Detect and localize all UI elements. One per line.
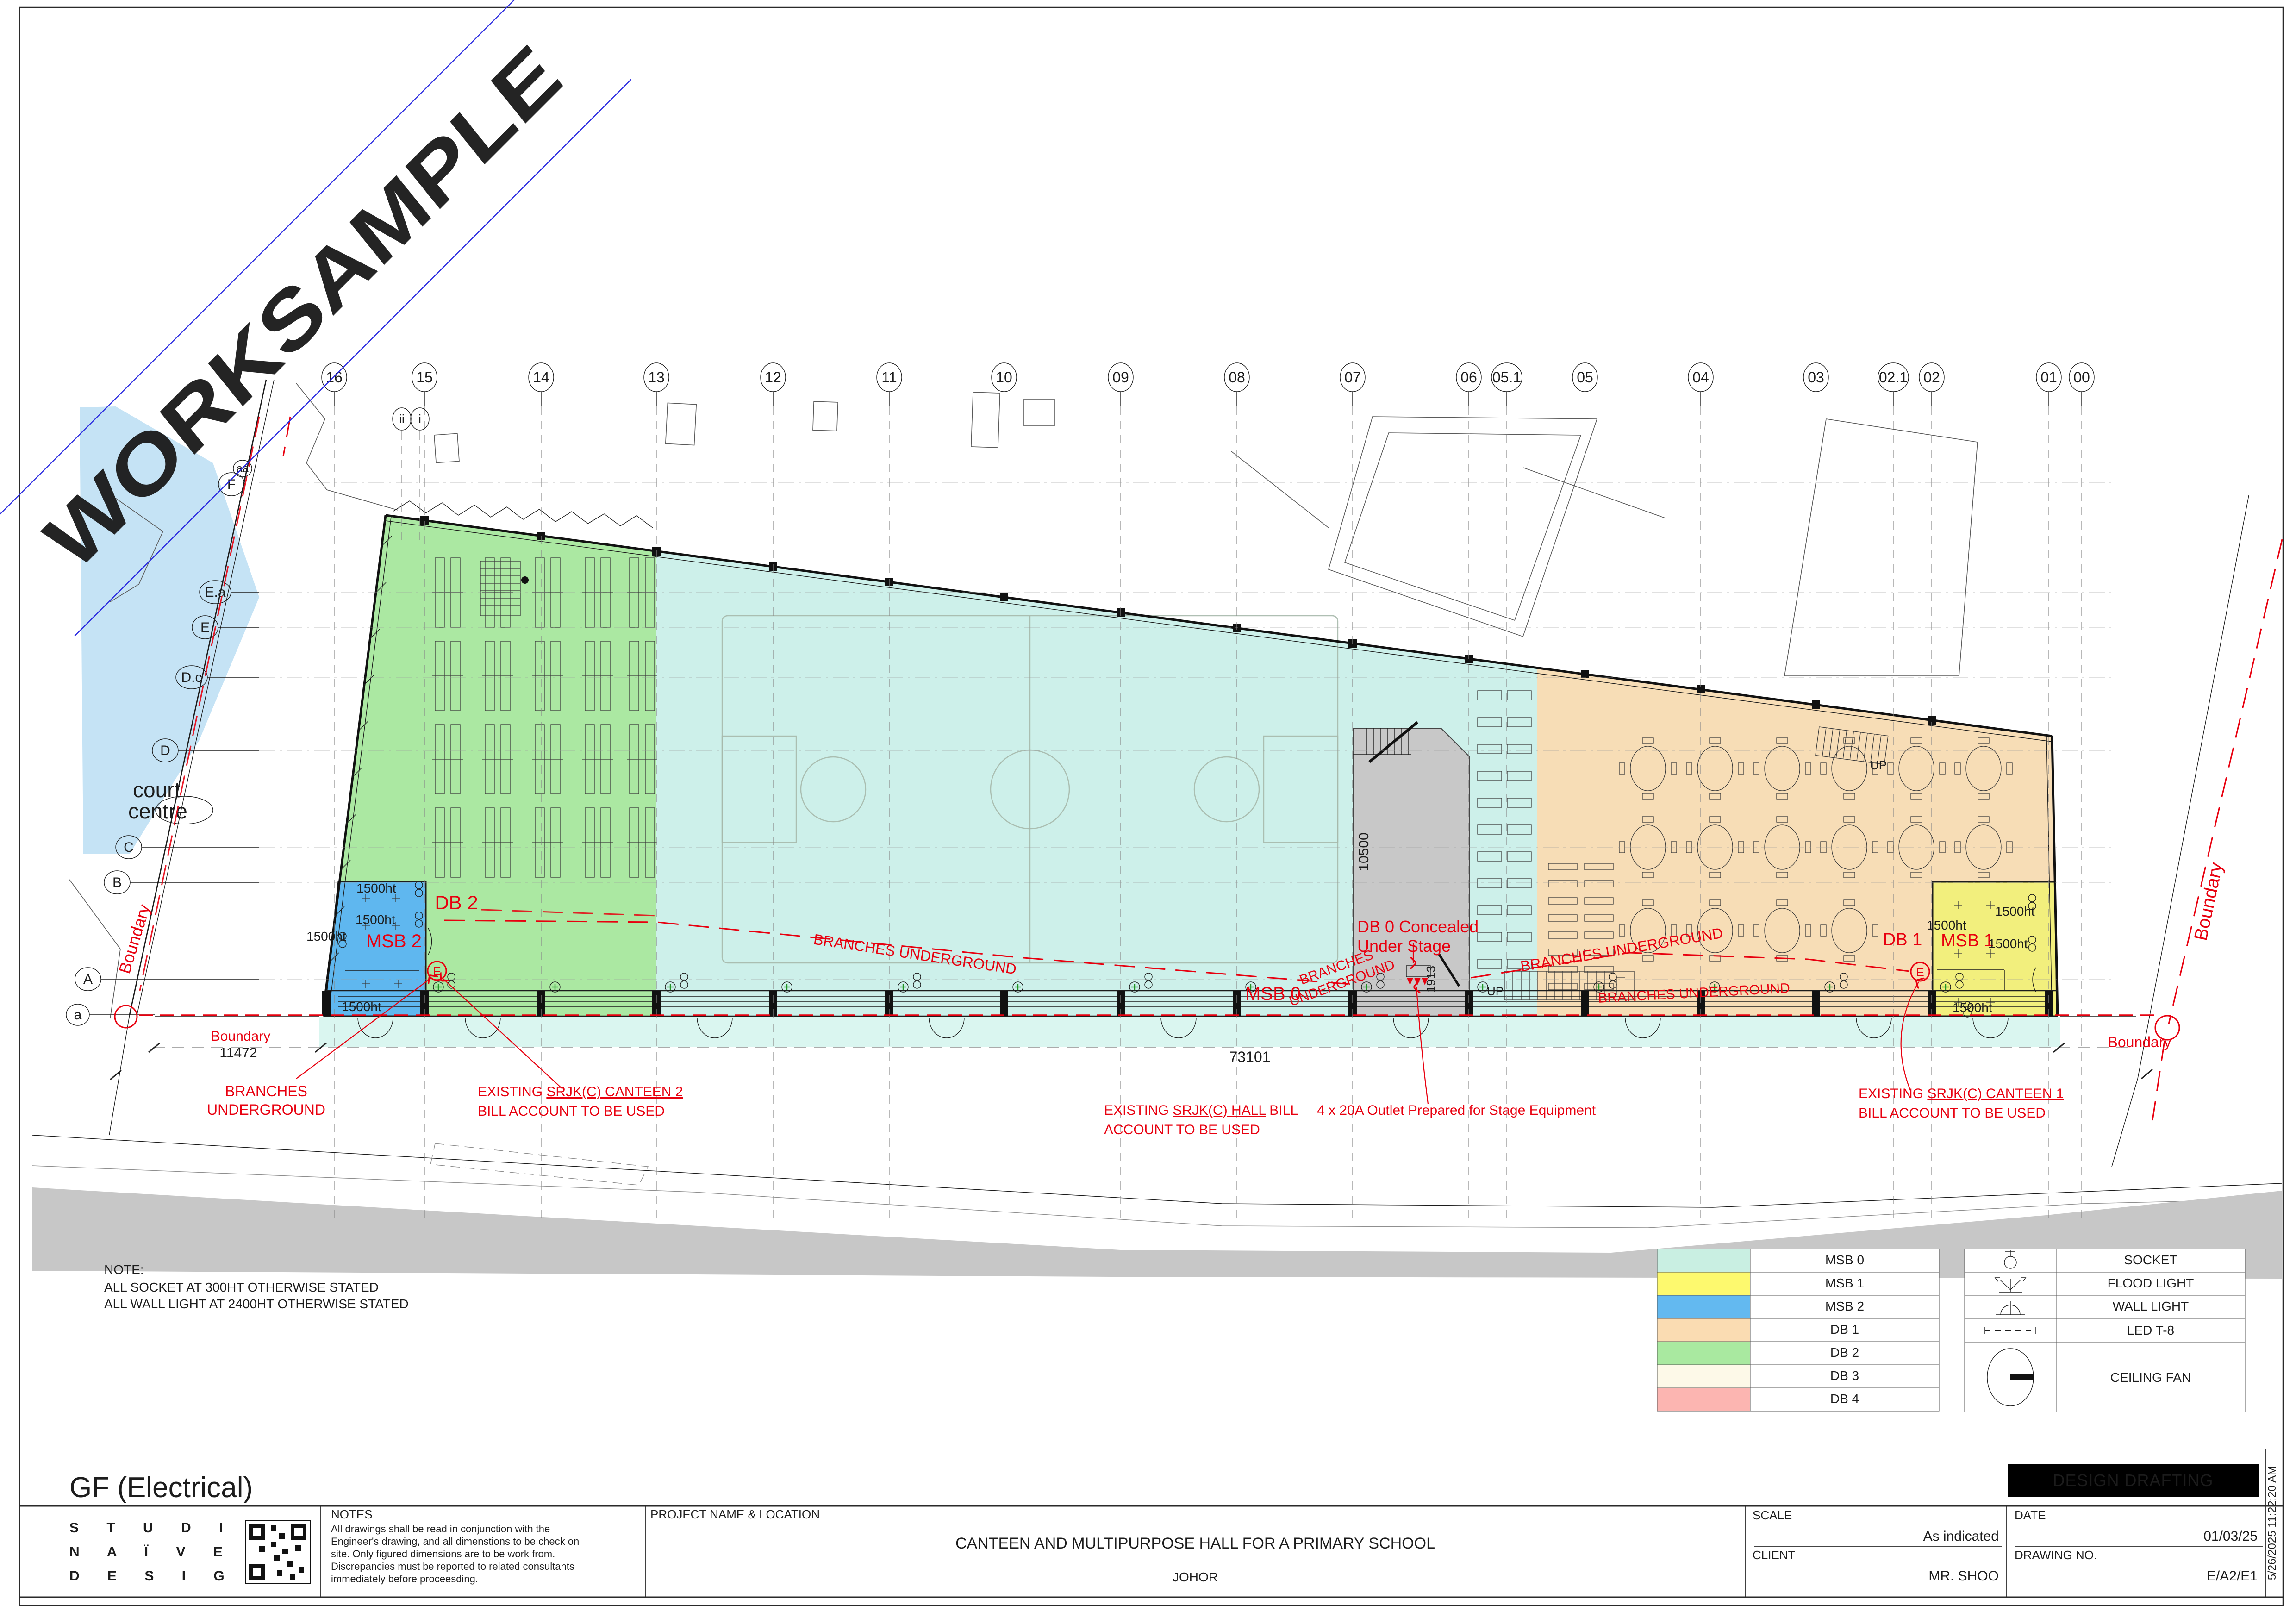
legend-label: FLOOD LIGHT [2108, 1276, 2194, 1290]
note-header: NOTE: [104, 1262, 144, 1277]
project-location: JOHOR [1173, 1570, 1218, 1584]
scale-value: As indicated [1923, 1529, 1999, 1544]
legend-label: DB 3 [1830, 1368, 1859, 1383]
svg-text:S T U D I O: S T U D I O [69, 1520, 274, 1536]
branches-label: BRANCHES [225, 1083, 307, 1099]
msb2-label: MSB 2 [366, 931, 422, 951]
db1-label: DB 1 [1883, 930, 1922, 949]
grid-bubble: 12 [765, 369, 781, 386]
notes-line: Discrepancies must be reported to relate… [331, 1561, 574, 1572]
notes-line: site. Only figured dimensions are to be … [331, 1548, 555, 1560]
svg-text:1500ht: 1500ht [342, 999, 381, 1014]
grid-bubble: 00 [2073, 369, 2090, 386]
db2-label: DB 2 [435, 892, 478, 913]
date-value: 01/03/25 [2203, 1529, 2258, 1544]
svg-text:5/26/2025 11:22:20 AM: 5/26/2025 11:22:20 AM [2266, 1466, 2278, 1580]
svg-text:1500ht: 1500ht [306, 929, 346, 943]
grid-bubble: 05 [1577, 369, 1593, 386]
legend-label: LED T-8 [2127, 1323, 2174, 1337]
legend-label: CEILING FAN [2110, 1370, 2191, 1385]
grid-bubble: a [74, 1007, 82, 1023]
grid-bubble: 08 [1229, 369, 1245, 386]
drawing-no-label: DRAWING NO. [2015, 1548, 2097, 1562]
grid-bubble-sub: i [418, 412, 421, 426]
grid-bubble: aa [237, 462, 249, 475]
grid-bubble: 01 [2040, 369, 2057, 386]
svg-text:ACCOUNT TO BE USED: ACCOUNT TO BE USED [1104, 1122, 1260, 1137]
grid-bubble: 05.1 [1492, 369, 1521, 386]
grid-bubble: A [83, 972, 93, 987]
drawing-no-value: E/A2/E1 [2207, 1568, 2258, 1584]
legend-label: WALL LIGHT [2113, 1299, 2189, 1313]
legend-label: SOCKET [2124, 1253, 2177, 1267]
note-line: ALL SOCKET AT 300HT OTHERWISE STATED [104, 1280, 379, 1294]
grid-bubble: D [160, 743, 170, 758]
legend-label: MSB 1 [1825, 1276, 1864, 1290]
qr-code [245, 1521, 310, 1583]
scale-label: SCALE [1753, 1508, 1792, 1522]
dim-10500: 10500 [1356, 832, 1372, 871]
svg-text:N A Ï V E: N A Ï V E [69, 1544, 235, 1560]
up-label: UP [1870, 758, 1887, 772]
grid-bubble: C [124, 840, 134, 855]
grid-bubble: 03 [1808, 369, 1824, 386]
legend-label: DB 1 [1830, 1322, 1859, 1337]
grid-bubble: 06 [1460, 369, 1477, 386]
grid-bubble: 15 [416, 369, 433, 386]
svg-text:1500ht: 1500ht [1953, 1000, 1992, 1015]
court-centre-text: centre [128, 799, 187, 823]
svg-text:1500ht: 1500ht [1995, 904, 2035, 918]
floor-plan-canvas: UP UP [0, 0, 2296, 1624]
grid-bubble: 02 [1923, 369, 1940, 386]
grid-bubble: 09 [1112, 369, 1129, 386]
underground-label: UNDERGROUND [207, 1101, 325, 1118]
notes-header: NOTES [331, 1507, 373, 1521]
grid-bubble: E.a [205, 585, 225, 600]
svg-text:BILL ACCOUNT TO BE USED: BILL ACCOUNT TO BE USED [1859, 1106, 2046, 1121]
grid-bubble: 07 [1344, 369, 1361, 386]
msb1-label: MSB 1 [1941, 931, 1994, 950]
svg-text:E: E [1916, 965, 1924, 979]
grid-bubble: 16 [326, 369, 343, 386]
date-label: DATE [2015, 1508, 2046, 1522]
legend-symbols: SOCKET FLOOD LIGHT WALL LIGHT LED T-8 CE… [1965, 1249, 2245, 1412]
boundary-label: Boundary [2108, 1034, 2171, 1050]
grid-bubble: D.c [181, 670, 202, 685]
svg-text:1500ht: 1500ht [356, 912, 395, 927]
svg-text:1500ht: 1500ht [356, 881, 396, 895]
grid-bubble: 10 [996, 369, 1012, 386]
court-centre-text: court [133, 778, 180, 802]
svg-text:E: E [433, 964, 441, 978]
outlet-note: 4 x 20A Outlet Prepared for Stage Equipm… [1317, 1103, 1596, 1118]
grid-bubble: 02.1 [1879, 369, 1908, 386]
client-value: MR. SHOO [1928, 1568, 1999, 1584]
grid-bubble: 04 [1692, 369, 1709, 386]
grid-bubble: E [200, 620, 210, 635]
notes-line: immediately before proceesding. [331, 1573, 478, 1585]
legend-zones: MSB 0 MSB 1 MSB 2 DB 1 DB 2 DB 3 DB 4 [1657, 1249, 1939, 1411]
svg-text:EXISTING SRJK(C) HALL BILL: EXISTING SRJK(C) HALL BILL [1104, 1103, 1298, 1118]
svg-text:DESIGN DRAFTING: DESIGN DRAFTING [2053, 1471, 2213, 1490]
svg-text:1500ht: 1500ht [1988, 937, 2028, 951]
legend-label: DB 2 [1830, 1345, 1859, 1360]
dim-1913: 1913 [1424, 966, 1438, 993]
grid-bubble: 11 [881, 369, 897, 386]
grid-bubble-sub: ii [399, 412, 405, 426]
project-header: PROJECT NAME & LOCATION [650, 1507, 820, 1521]
svg-text:1500ht: 1500ht [1927, 918, 1966, 932]
grid-bubble: 14 [533, 369, 549, 386]
walkway [319, 1017, 2060, 1047]
legend-label: MSB 2 [1825, 1299, 1864, 1313]
grid-bubble: B [112, 875, 122, 890]
db0-label: DB 0 Concealed [1357, 917, 1479, 936]
notes-line: Engineer's drawing, and all dimenstions … [331, 1536, 579, 1547]
print-timestamp: 5/26/2025 11:22:20 AM [2266, 1466, 2278, 1580]
drawing-sheet: { "sheet": { "watermark": "WORKSAMPLE", … [0, 0, 2296, 1624]
project-name: CANTEEN AND MULTIPURPOSE HALL FOR A PRIM… [955, 1535, 1435, 1552]
grid-bubble: 13 [648, 369, 665, 386]
dim-11472: 11472 [219, 1045, 257, 1061]
notes-line: All drawings shall be read in conjunctio… [331, 1523, 550, 1535]
client-label: CLIENT [1753, 1548, 1796, 1562]
note-line: ALL WALL LIGHT AT 2400HT OTHERWISE STATE… [104, 1297, 409, 1311]
sheet-title: GF (Electrical) [69, 1472, 253, 1504]
svg-text:EXISTING SRJK(C) CANTEEN 1: EXISTING SRJK(C) CANTEEN 1 [1859, 1086, 2064, 1101]
dim-73101: 73101 [1229, 1049, 1271, 1065]
svg-text:EXISTING SRJK(C) CANTEEN 2: EXISTING SRJK(C) CANTEEN 2 [478, 1084, 683, 1099]
legend-label: DB 4 [1830, 1392, 1859, 1406]
svg-text:BILL ACCOUNT TO BE USED: BILL ACCOUNT TO BE USED [478, 1104, 665, 1119]
boundary-label: Boundary [211, 1029, 270, 1044]
svg-text:D E S I G N: D E S I G N [69, 1568, 275, 1584]
legend-label: MSB 0 [1825, 1253, 1864, 1267]
design-drafting-stamp: DESIGN DRAFTING [2008, 1464, 2259, 1497]
